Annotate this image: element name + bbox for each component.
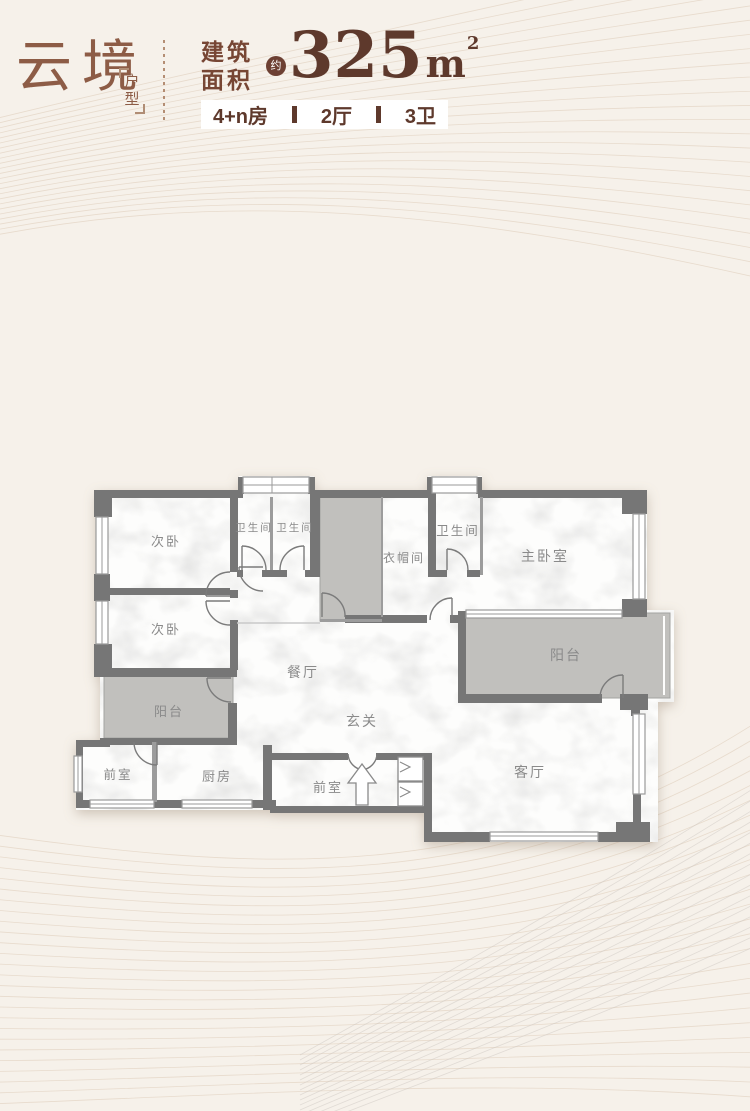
room-label-front-room-entry: 前室 [313, 780, 343, 795]
room-label-bedroom-3: 次卧 [151, 622, 181, 637]
window [96, 517, 108, 574]
floorplan-drawing: 次卧 次卧 卫生间 卫生间 衣帽间 卫生间 主卧室 阳台 餐厅 玄关 阳台 前室… [70, 470, 674, 850]
room-label-front-room-west: 前室 [103, 767, 132, 782]
room-label-balcony-west: 阳台 [154, 704, 184, 719]
room-label-kitchen: 厨房 [202, 769, 232, 784]
window [633, 514, 645, 599]
bay-window [432, 477, 477, 493]
duct-box [398, 757, 423, 781]
room-label-bath-master: 卫生间 [436, 524, 480, 538]
bay-window [243, 477, 309, 493]
window [74, 756, 82, 792]
room-label-cloakroom: 衣帽间 [383, 550, 425, 565]
duct-box [398, 782, 423, 806]
window [182, 800, 252, 808]
window [490, 832, 598, 841]
room-label-bath-1: 卫生间 [235, 521, 273, 534]
window [96, 601, 108, 644]
window [466, 610, 622, 618]
room-label-foyer: 玄关 [346, 713, 378, 729]
room-label-bath-2: 卫生间 [276, 521, 314, 534]
window [90, 800, 154, 808]
room-label-balcony-east: 阳台 [550, 647, 582, 663]
shaft-zone [320, 497, 382, 621]
window [633, 714, 645, 794]
room-label-dining: 餐厅 [287, 664, 319, 680]
floorplan: 次卧 次卧 卫生间 卫生间 衣帽间 卫生间 主卧室 阳台 餐厅 玄关 阳台 前室… [0, 0, 750, 1111]
room-label-master-bedroom: 主卧室 [521, 548, 569, 564]
room-label-bedroom-2: 次卧 [151, 534, 181, 549]
room-label-living: 客厅 [514, 764, 546, 780]
